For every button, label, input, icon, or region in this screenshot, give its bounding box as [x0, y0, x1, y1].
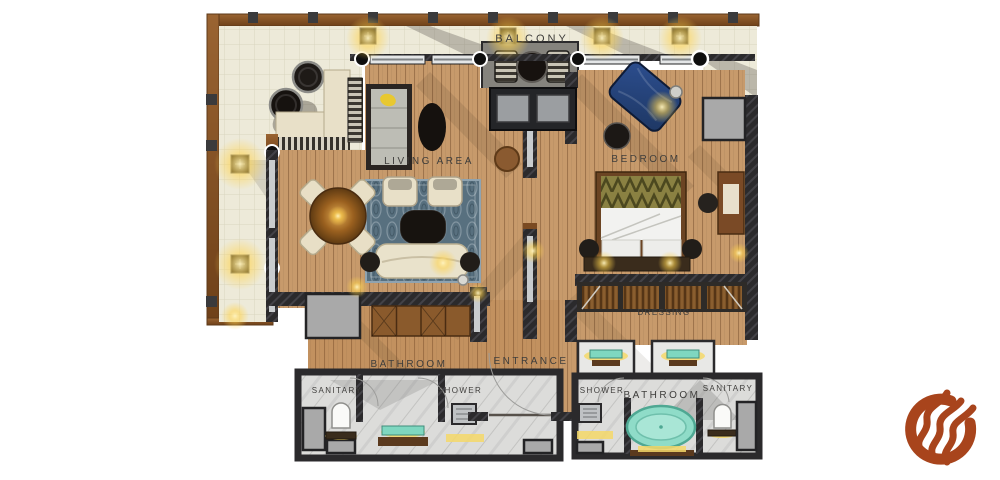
sink-counter — [382, 426, 424, 435]
apartment-floorplan: BALCONY LIVING AREA BEDROOM BATHROOM ENT… — [0, 0, 1000, 480]
label-bathroom-right: BATHROOM — [623, 390, 700, 401]
utility-room — [306, 294, 360, 338]
entry-closet — [490, 88, 576, 130]
label-sanitary-right: SANITARY — [703, 384, 753, 393]
closet — [737, 402, 756, 450]
side-table — [460, 252, 480, 272]
vanity-right — [652, 341, 714, 376]
floor-lamp — [458, 275, 468, 285]
leather-pouf — [495, 147, 519, 171]
vanity-left — [578, 341, 634, 376]
storage-cabinets — [372, 306, 470, 336]
utility-shaft — [703, 98, 745, 140]
ottoman — [604, 123, 630, 149]
desk-stool — [698, 193, 718, 213]
label-balcony: BALCONY — [495, 33, 569, 45]
label-sanitary-left: SANITARY — [312, 386, 362, 395]
toilet-icon — [332, 403, 350, 428]
label-dressing: DRESSING — [638, 308, 691, 317]
sofa — [360, 244, 480, 278]
louver-screen — [348, 78, 362, 142]
toilet-icon — [714, 405, 731, 429]
decor-oval-table — [418, 103, 446, 151]
label-living-area: LIVING AREA — [384, 156, 474, 167]
floorplan-canvas: BALCONY LIVING AREA BEDROOM BATHROOM ENT… — [0, 0, 1000, 480]
bed-throw — [601, 176, 681, 208]
bed — [579, 172, 702, 260]
nightstand — [682, 239, 702, 259]
flame-ring-logo-icon — [911, 393, 973, 462]
label-shower-right: SHOWER — [580, 386, 624, 395]
label-shower-left: SHOWER — [438, 386, 482, 395]
label-bathroom-left: BATHROOM — [370, 359, 447, 370]
label-bedroom: BEDROOM — [611, 154, 680, 165]
label-entrance: ENTRANCE — [493, 356, 568, 367]
coffee-table — [400, 210, 446, 244]
side-table — [360, 252, 380, 272]
